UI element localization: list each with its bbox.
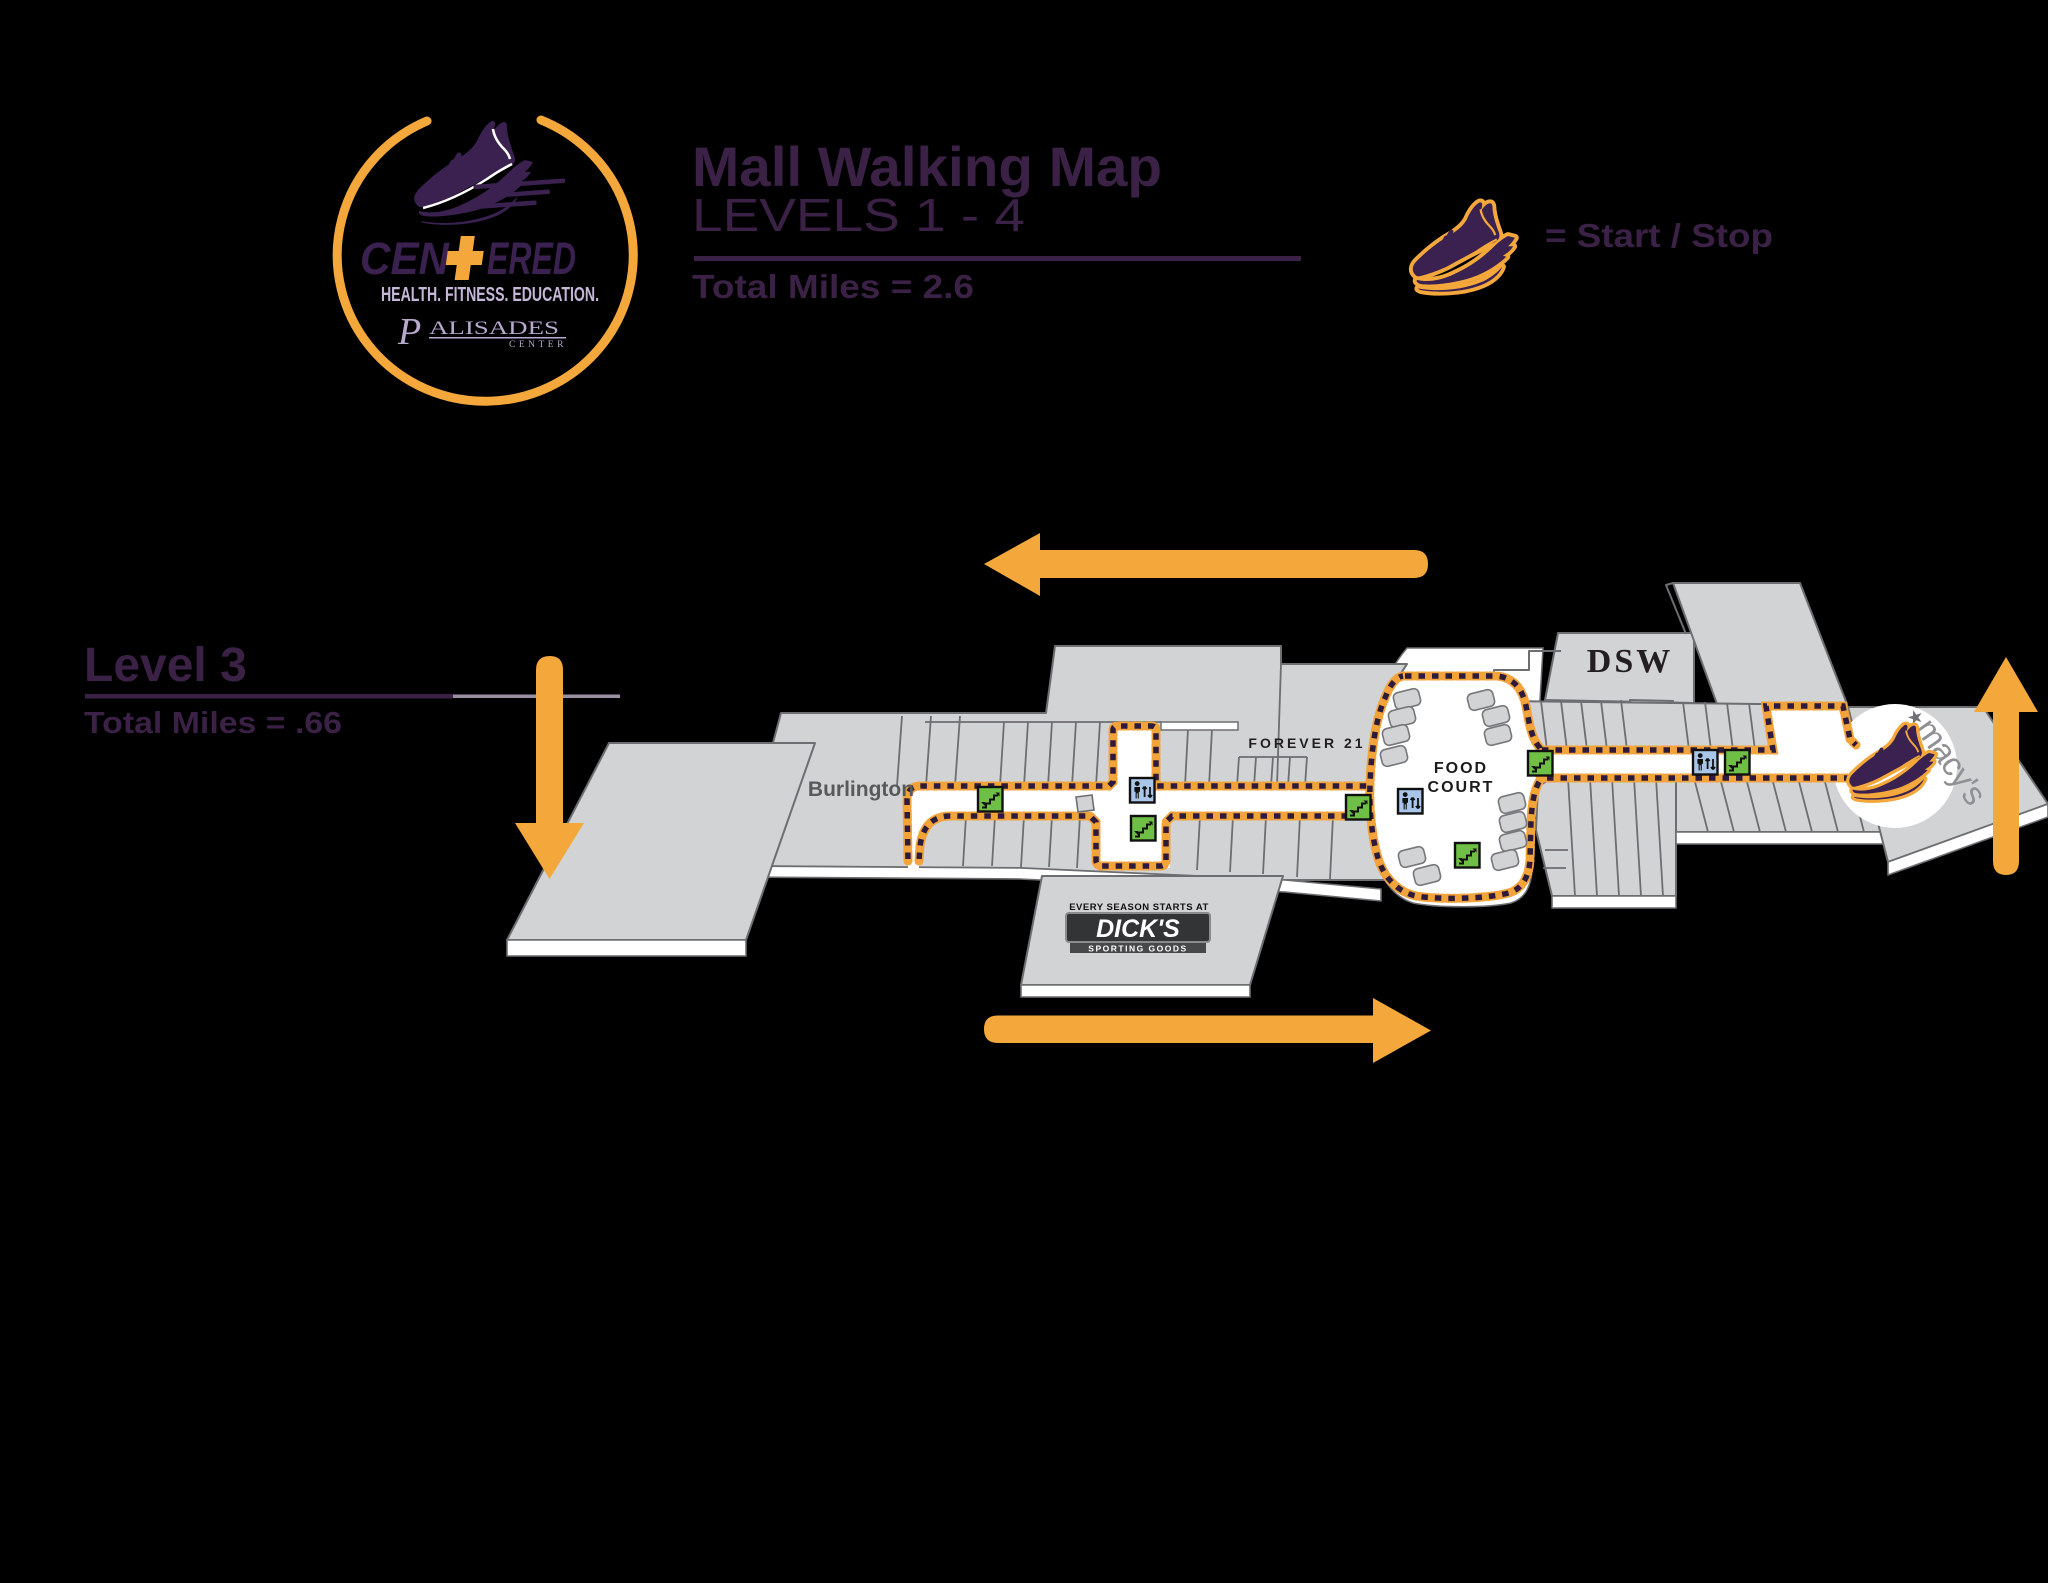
svg-text:FOOD: FOOD — [1434, 760, 1488, 777]
svg-text:ERED: ERED — [487, 233, 576, 284]
svg-text:COURT: COURT — [1428, 779, 1495, 796]
svg-text:HEALTH. FITNESS. EDUCATION.: HEALTH. FITNESS. EDUCATION. — [381, 284, 599, 306]
svg-text:= Start / Stop: = Start / Stop — [1545, 217, 1773, 254]
svg-text:DSW: DSW — [1587, 643, 1673, 680]
svg-text:LEVELS 1 - 4: LEVELS 1 - 4 — [692, 189, 1025, 241]
svg-text:Total Miles = .66: Total Miles = .66 — [84, 705, 342, 740]
svg-text:CENTER: CENTER — [509, 340, 567, 350]
svg-text:Level 3: Level 3 — [84, 639, 247, 692]
svg-text:FOREVER 21: FOREVER 21 — [1248, 735, 1365, 751]
svg-text:DICK'S: DICK'S — [1096, 915, 1180, 943]
svg-text:ALISADES: ALISADES — [429, 318, 559, 339]
svg-text:Burlington: Burlington — [808, 778, 914, 801]
svg-text:EVERY SEASON STARTS AT: EVERY SEASON STARTS AT — [1069, 902, 1209, 913]
svg-text:P: P — [397, 311, 421, 353]
svg-text:Total Miles = 2.6: Total Miles = 2.6 — [692, 268, 974, 305]
svg-text:SPORTING GOODS: SPORTING GOODS — [1088, 944, 1187, 954]
svg-text:CEN: CEN — [360, 233, 450, 284]
